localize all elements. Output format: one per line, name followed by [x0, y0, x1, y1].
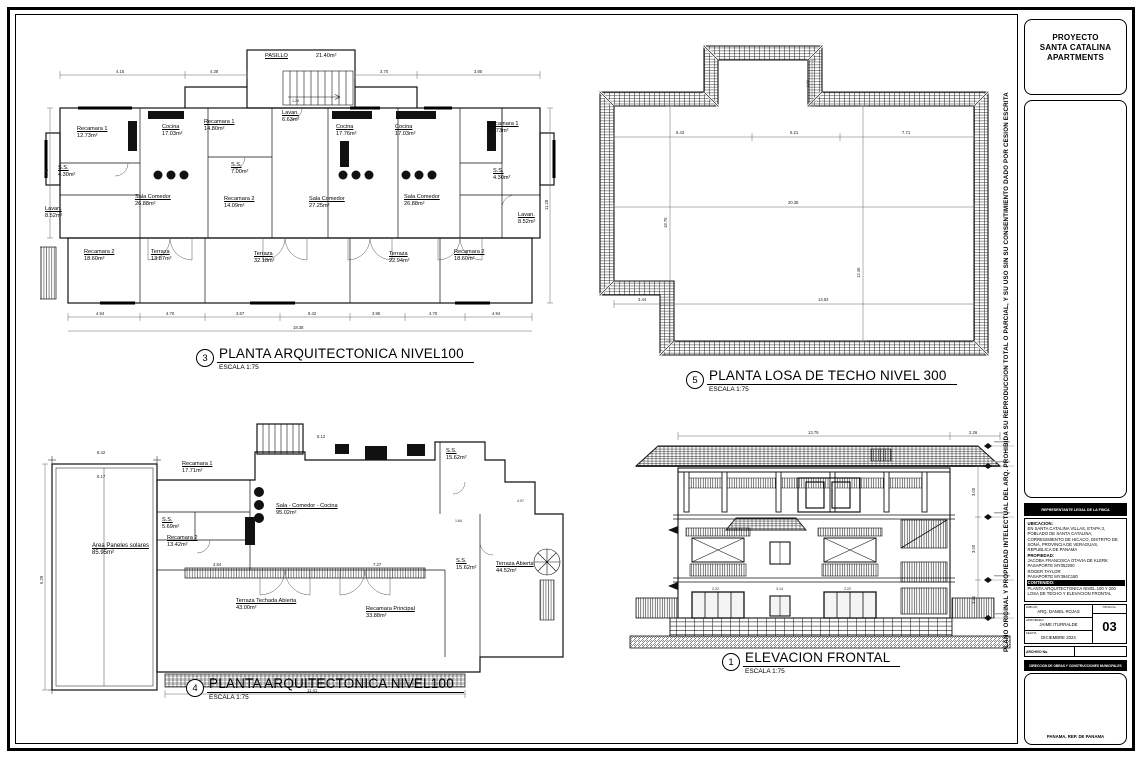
room-name: Terraza [151, 249, 172, 256]
room-label: PASILLO21.40m² [265, 53, 336, 60]
room-area: 14.09m² [224, 203, 254, 210]
svg-text:20.35: 20.35 [788, 200, 799, 205]
svg-text:1.24: 1.24 [292, 99, 299, 103]
room-name: Lavan. [282, 110, 299, 117]
room-area: 14.80m² [204, 126, 234, 133]
project-line: APARTMENTS [1025, 53, 1126, 63]
room-label: Recamara 218.60m² [454, 249, 484, 263]
legal-header-bar: REPRESENTANTE LEGAL DE LA FINCA [1024, 503, 1127, 516]
room-name: Cocina [336, 124, 357, 131]
room-area: 32.18m² [254, 258, 275, 265]
room-area: 26.88m² [404, 201, 440, 208]
room-name: Terraza Abierta [496, 561, 534, 568]
room-area: 15.62m² [456, 565, 477, 572]
room-label: Terraza Techada Abierta43.00m² [236, 598, 296, 612]
room-name: Recamara 2 [224, 196, 254, 203]
svg-text:1.98: 1.98 [806, 80, 810, 87]
drawing-scale-text: ESCALA 1:75 [207, 694, 464, 701]
hoja-label: HOJA No. [1094, 606, 1125, 609]
svg-text:2.22: 2.22 [712, 587, 719, 591]
room-label: Terraza22.94m² [389, 251, 410, 265]
room-label: S.S.15.62m² [446, 448, 467, 462]
drawing-scale-text: ESCALA 1:75 [707, 386, 957, 393]
room-area: 17.76m² [336, 131, 357, 138]
room-area: 8.52m² [518, 219, 535, 226]
room-name: Cocina [395, 124, 416, 131]
room-label: Cocina17.03m² [162, 124, 183, 138]
room-label: Recamara 214.09m² [224, 196, 254, 210]
staircase [263, 424, 299, 454]
drawing-title-text: PLANTA LOSA DE TECHO NIVEL 300 [707, 368, 957, 385]
kitchen-fixtures [245, 444, 425, 545]
title-block: PROYECTO SANTA CATALINA APARTMENTS REPRE… [1023, 14, 1131, 742]
fecha-cell: FECHA DICIEMBRE 2024 [1025, 631, 1093, 643]
solar-panel-area [48, 456, 161, 694]
room-area: 44.52m² [496, 568, 534, 575]
svg-text:5.12: 5.12 [317, 434, 326, 439]
drawing-title-text: PLANTA ARQUITECTONICA NIVEL100 [217, 346, 474, 363]
floor-plan-svg: 4.15 4.38 3.70 3.85 1.24 4.94 4.70 3.67 … [40, 45, 560, 347]
room-name: S.S. [493, 168, 510, 175]
svg-text:3.70: 3.70 [380, 69, 389, 74]
roof-plan-nivel300: 6.43 6.21 7.71 20.35 3.44 14.92 18.75 12… [592, 42, 997, 367]
archivo-label: ARCHIVO No. [1026, 648, 1073, 656]
room-label: S.S.7.00m² [231, 162, 248, 176]
room-name: Area Paneles solares [92, 543, 149, 550]
elevation-svg: 13.79 2.26 3.00 3.00 3.51 2.22 3.14 2.22 [618, 420, 1018, 652]
room-label: Cocina17.03m² [395, 124, 416, 138]
drawing-title-text: PLANTA ARQUITECTONICA NIVEL100 [207, 676, 464, 693]
room-area: 12.73m² [488, 128, 518, 135]
signature-table: DIBUJO ARQ. DANIEL ROJAS APROBADO JAIME … [1024, 604, 1127, 644]
municipal-box: PANAMA, REP. DE PANAMA [1024, 673, 1127, 745]
svg-text:7.27: 7.27 [373, 562, 382, 567]
room-label: Lavan.6.63m² [282, 110, 299, 124]
room-name: S.S. [162, 517, 179, 524]
svg-text:12.46: 12.46 [856, 267, 861, 278]
drawing-scale-text: ESCALA 1:75 [743, 668, 900, 675]
svg-text:3.85: 3.85 [474, 69, 483, 74]
room-area: 8.52m² [45, 213, 62, 220]
project-line: SANTA CATALINA [1025, 43, 1126, 53]
ground-hatch [630, 636, 1010, 648]
drawing-title-plan4: 4 PLANTA ARQUITECTONICA NIVEL100 ESCALA … [186, 676, 464, 701]
room-name: S.S. [231, 162, 248, 169]
svg-text:4.07: 4.07 [517, 499, 524, 503]
project-line: PROYECTO [1025, 33, 1126, 43]
location-info-box: UBICACION: EN SANTA CATALINA VILLAS, ETA… [1024, 518, 1127, 602]
svg-text:4.40: 4.40 [44, 168, 49, 177]
room-label: Lavan.8.52m² [45, 206, 62, 220]
spiral-stair [534, 549, 560, 620]
kitchen-fixtures [128, 111, 496, 180]
project-name: PROYECTO SANTA CATALINA APARTMENTS [1025, 20, 1126, 63]
room-area: 17.03m² [162, 131, 183, 138]
exterior-walls [46, 50, 554, 303]
fecha-value: DICIEMBRE 2024 [1026, 635, 1091, 640]
drawing-number-circle: 5 [686, 371, 704, 389]
stamp-box [1024, 100, 1127, 498]
room-label: S.S.4.30m² [493, 168, 510, 182]
room-name: Lavan. [45, 206, 62, 213]
svg-text:4.70: 4.70 [429, 311, 438, 316]
room-label: Sala Comedor26.88m² [404, 194, 440, 208]
svg-text:18.38: 18.38 [293, 325, 304, 330]
drawing-title-text: ELEVACION FRONTAL [743, 650, 900, 667]
svg-text:3.67: 3.67 [236, 311, 245, 316]
room-area: 12.73m² [77, 133, 107, 140]
drawing-number-circle: 3 [196, 349, 214, 367]
floor-plan-nivel200: 6.42 6.17 6.29 11.41 7.27 4.84 5.12 1.64… [35, 422, 570, 707]
hoja-number-cell: 03 [1093, 614, 1126, 643]
copyright-disclaimer-vertical: PLANO ORIGINAL Y PROPIEDAD INTELECTUAL D… [1003, 92, 1017, 652]
dibujo-cell: DIBUJO ARQ. DANIEL ROJAS [1025, 605, 1093, 618]
room-area: 18.60m² [454, 256, 484, 263]
room-area: 7.00m² [231, 169, 248, 176]
room-area: 17.71m² [182, 468, 212, 475]
svg-text:4.70: 4.70 [166, 311, 175, 316]
exterior-walls [157, 424, 563, 672]
svg-text:4.94: 4.94 [96, 311, 105, 316]
drawing-scale-text: ESCALA 1:75 [217, 364, 474, 371]
svg-text:6.21: 6.21 [790, 130, 799, 135]
contenido-line: LOSA DE TECHO Y ELEVACION FRONTAL [1028, 591, 1124, 596]
svg-text:3.95: 3.95 [372, 311, 381, 316]
room-name: Sala - Comedor - Cocina [276, 503, 338, 510]
room-label: S.S.15.62m² [456, 558, 477, 572]
room-area: 4.30m² [58, 172, 75, 179]
svg-text:2.22: 2.22 [844, 587, 851, 591]
hoja-number: 03 [1094, 615, 1125, 639]
lower-windows [692, 592, 876, 618]
main-roof [636, 446, 1000, 466]
room-name: PASILLO [265, 53, 288, 60]
room-label: Area Paneles solares85.95m² [92, 543, 149, 557]
upper-colonnade [678, 472, 950, 512]
footer-location: PANAMA, REP. DE PANAMA [1025, 734, 1126, 739]
room-name: Recamara Principal [366, 606, 415, 613]
svg-text:11.28: 11.28 [544, 199, 549, 210]
room-label: Recamara 117.71m² [182, 461, 212, 475]
room-name: Recamara 2 [167, 535, 197, 542]
room-area: 22.94m² [389, 258, 410, 265]
svg-text:4.38: 4.38 [210, 69, 219, 74]
room-area: 13.42m² [167, 542, 197, 549]
room-name: S.S. [456, 558, 477, 565]
svg-text:4.15: 4.15 [116, 69, 125, 74]
room-name: Recamara 1 [204, 119, 234, 126]
front-elevation: 13.79 2.26 3.00 3.00 3.51 2.22 3.14 2.22 [618, 420, 1018, 652]
roof-dimension-texts: 6.43 6.21 7.71 20.35 3.44 14.92 18.75 12… [638, 80, 911, 302]
room-area: 15.62m² [446, 455, 467, 462]
room-label: Sala Comedor27.25m² [309, 196, 345, 210]
svg-text:3.14: 3.14 [776, 587, 783, 591]
room-name: S.S. [446, 448, 467, 455]
windows [46, 108, 554, 303]
svg-text:2.26: 2.26 [969, 430, 978, 435]
room-name: Terraza Techada Abierta [236, 598, 296, 605]
room-area: 5.69m² [162, 524, 179, 531]
room-label: Cocina17.76m² [336, 124, 357, 138]
room-area: 33.88m² [366, 613, 415, 620]
stone-base [670, 618, 952, 636]
drawing-title-elev1: 1 ELEVACION FRONTAL ESCALA 1:75 [722, 650, 900, 675]
stair-tower [901, 520, 947, 614]
room-label: Recamara 112.73m² [77, 126, 107, 140]
room-name: Recamara 2 [454, 249, 484, 256]
svg-text:1.64: 1.64 [455, 519, 462, 523]
room-name: Recamara 1 [182, 461, 212, 468]
room-name: S.S. [58, 165, 75, 172]
svg-text:3.00: 3.00 [971, 487, 976, 496]
room-label: S.S.4.30m² [58, 165, 75, 179]
room-area: 85.95m² [92, 550, 149, 557]
balcony-hatch [40, 247, 56, 299]
room-label: Sala - Comedor - Cocina95.02m² [276, 503, 338, 517]
svg-text:3.51: 3.51 [971, 595, 976, 604]
contenido-label-bar: CONTENIDO: [1027, 580, 1125, 585]
svg-text:3.44: 3.44 [638, 297, 647, 302]
svg-text:14.92: 14.92 [818, 297, 829, 302]
aprobado-value: JAIME ITURRALDE [1026, 622, 1091, 627]
room-label: Terraza Abierta44.52m² [496, 561, 534, 575]
svg-text:8.42: 8.42 [308, 311, 317, 316]
room-area: 18.60m² [84, 256, 114, 263]
floor-plan-nivel100-top: 4.15 4.38 3.70 3.85 1.24 4.94 4.70 3.67 … [40, 45, 560, 347]
room-name: Sala Comedor [404, 194, 440, 201]
room-area: 95.02m² [276, 510, 338, 517]
room-area: 4.30m² [493, 175, 510, 182]
room-name: Sala Comedor [309, 196, 345, 203]
room-label: Recamara 114.80m² [204, 119, 234, 133]
aprobado-cell: APROBADO JAIME ITURRALDE [1025, 618, 1093, 631]
room-label: Sala Comedor26.88m² [135, 194, 171, 208]
room-name: Terraza [254, 251, 275, 258]
room-name: Recamara 2 [84, 249, 114, 256]
svg-text:6.42: 6.42 [97, 450, 106, 455]
archivo-cell: ARCHIVO No. [1025, 647, 1075, 657]
room-area: 26.88m² [135, 201, 171, 208]
room-label: Lavan.8.52m² [518, 212, 535, 226]
dibujo-value: ARQ. DANIEL ROJAS [1026, 609, 1091, 614]
svg-text:18.75: 18.75 [663, 217, 668, 228]
room-name: Terraza [389, 251, 410, 258]
room-area: 43.00m² [236, 605, 296, 612]
svg-text:7.71: 7.71 [902, 130, 911, 135]
room-area: 6.63m² [282, 117, 299, 124]
floor-plan-svg: 6.42 6.17 6.29 11.41 7.27 4.84 5.12 1.64… [35, 422, 570, 707]
room-name: Sala Comedor [135, 194, 171, 201]
propiedad-line: PASAPORTE MY394C180 [1028, 574, 1124, 579]
room-label: S.S.5.69m² [162, 517, 179, 531]
room-label: Recamara 213.42m² [167, 535, 197, 549]
room-label: Recamara Principal33.88m² [366, 606, 415, 620]
archivo-row: ARCHIVO No. HOJA No. A-03 [1024, 646, 1127, 657]
room-label: Terraza13.87m² [151, 249, 172, 263]
drawing-sheet: 4.15 4.38 3.70 3.85 1.24 4.94 4.70 3.67 … [0, 0, 1142, 758]
svg-text:4.84: 4.84 [213, 562, 222, 567]
dimension-lines [47, 71, 553, 331]
room-name: Cocina [162, 124, 183, 131]
drawing-number-circle: 4 [186, 679, 204, 697]
room-label: Terraza32.18m² [254, 251, 275, 265]
room-area: 27.25m² [309, 203, 345, 210]
room-area: 21.40m² [316, 53, 337, 60]
mid-level [668, 518, 882, 590]
svg-text:6.17: 6.17 [97, 474, 106, 479]
room-name: Lavan. [518, 212, 535, 219]
roof-plan-svg: 6.43 6.21 7.71 20.35 3.44 14.92 18.75 12… [592, 42, 997, 367]
dimension-lines [42, 464, 465, 698]
project-title-box: PROYECTO SANTA CATALINA APARTMENTS [1024, 19, 1127, 95]
dimension-texts: 6.42 6.17 6.29 11.41 7.27 4.84 5.12 1.64… [39, 434, 524, 693]
fence-left [636, 598, 678, 618]
room-label: Recamara 112.73m² [488, 121, 518, 135]
hoja-header-cell: HOJA No. [1093, 605, 1126, 614]
svg-text:4.94: 4.94 [492, 311, 501, 316]
drawing-title-roof5: 5 PLANTA LOSA DE TECHO NIVEL 300 ESCALA … [686, 368, 957, 393]
room-area: 13.87m² [151, 256, 172, 263]
direccion-bar: DIRECCION DE OBRAS Y CONSTRUCCIONES MUNI… [1024, 660, 1127, 671]
room-name: Recamara 1 [488, 121, 518, 128]
hoja2-cell: HOJA No. A-03 [1075, 647, 1126, 657]
svg-text:6.29: 6.29 [39, 575, 44, 584]
room-label: Recamara 218.60m² [84, 249, 114, 263]
room-area: 17.03m² [395, 131, 416, 138]
drawing-title-plan3: 3 PLANTA ARQUITECTONICA NIVEL100 ESCALA … [196, 346, 474, 371]
svg-text:6.43: 6.43 [676, 130, 685, 135]
svg-text:13.79: 13.79 [808, 430, 819, 435]
svg-text:3.00: 3.00 [971, 544, 976, 553]
room-name: Recamara 1 [77, 126, 107, 133]
drawing-number-circle: 1 [722, 653, 740, 671]
